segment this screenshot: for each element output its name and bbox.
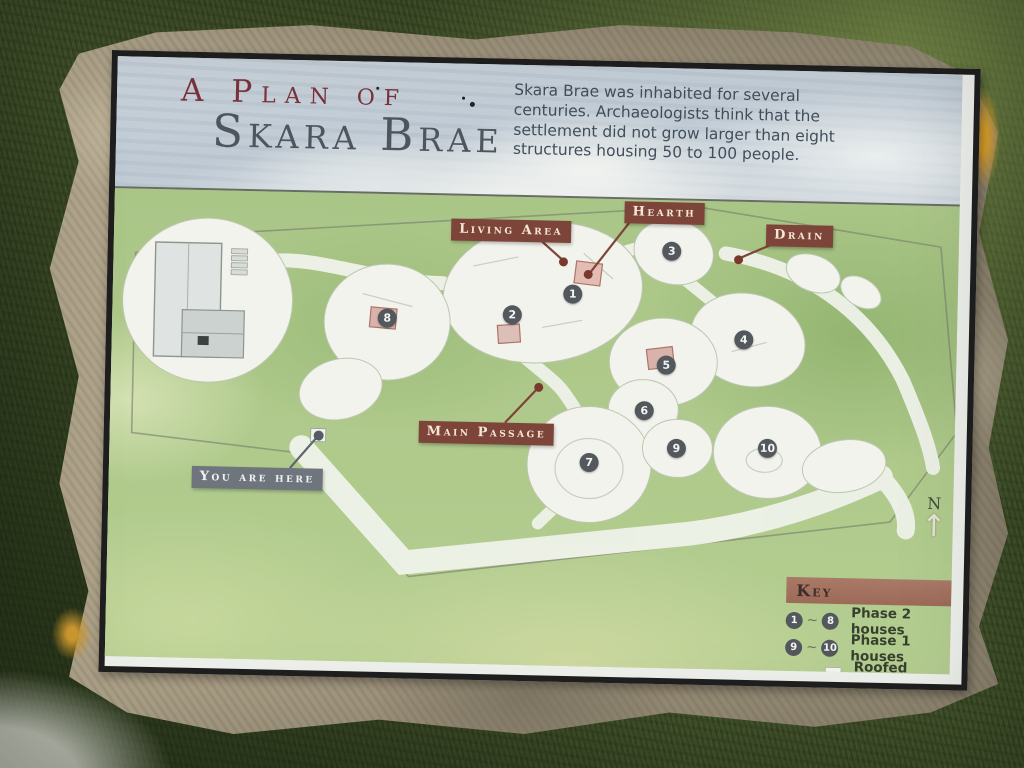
map-label-you-are-here: You are here: [191, 466, 322, 491]
key-title: Key: [786, 577, 952, 607]
compass: N ↑: [913, 494, 955, 567]
intro-paragraph: Skara Brae was inhabited for several cen…: [513, 81, 837, 167]
key-row-label: Roofed areas: [853, 659, 950, 674]
roofed-area-swatch: [824, 666, 841, 674]
key-house-number: 10: [821, 639, 838, 656]
map-label-main-passage: Main Passage: [419, 421, 555, 446]
photo-of-information-panel: A Plan of Skara Brae Skara Brae was inha…: [0, 0, 1024, 768]
title-main: Skara Brae: [212, 106, 505, 162]
map-label-hearth: Hearth: [624, 201, 704, 225]
map-label-drain: Drain: [766, 224, 833, 247]
sign-header: A Plan of Skara Brae Skara Brae was inha…: [115, 56, 963, 204]
key-row-phase1: 9 ~ 10 Phase 1 houses: [785, 637, 950, 661]
map-label-living-area: Living Area: [451, 218, 571, 243]
map-key: Key 1 ~ 8 Phase 2 houses 9 ~ 10 Phase 1 …: [784, 577, 951, 675]
paint-speck: [462, 97, 465, 100]
key-row-roofed: Roofed areas: [784, 664, 949, 675]
interpretation-sign: A Plan of Skara Brae Skara Brae was inha…: [98, 50, 980, 691]
key-house-number: 8: [822, 612, 839, 629]
key-range-tilde: ~: [802, 639, 822, 655]
key-row-phase2: 1 ~ 8 Phase 2 houses: [786, 610, 951, 634]
site-plan-map: Key 1 ~ 8 Phase 2 houses 9 ~ 10 Phase 1 …: [105, 186, 960, 674]
key-range-tilde: ~: [803, 612, 823, 628]
key-house-number: 1: [786, 611, 803, 628]
page-title: A Plan of Skara Brae: [180, 74, 505, 163]
north-arrow-icon: ↑: [914, 513, 955, 541]
key-house-number: 9: [785, 638, 802, 655]
